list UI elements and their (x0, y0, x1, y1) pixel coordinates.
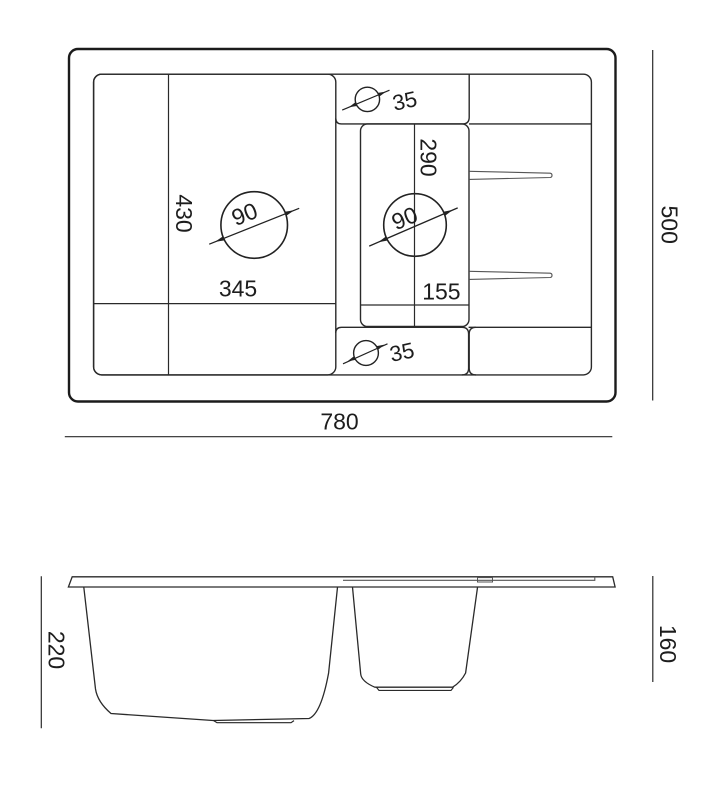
svg-text:35: 35 (387, 337, 416, 367)
svg-text:780: 780 (320, 409, 358, 435)
svg-text:35: 35 (390, 86, 419, 116)
svg-text:345: 345 (219, 276, 257, 302)
svg-text:430: 430 (171, 194, 197, 232)
svg-text:500: 500 (656, 206, 682, 244)
svg-text:290: 290 (416, 138, 442, 176)
svg-text:155: 155 (422, 278, 460, 304)
svg-text:90: 90 (388, 201, 422, 235)
svg-text:220: 220 (44, 631, 70, 669)
svg-text:160: 160 (655, 625, 681, 663)
